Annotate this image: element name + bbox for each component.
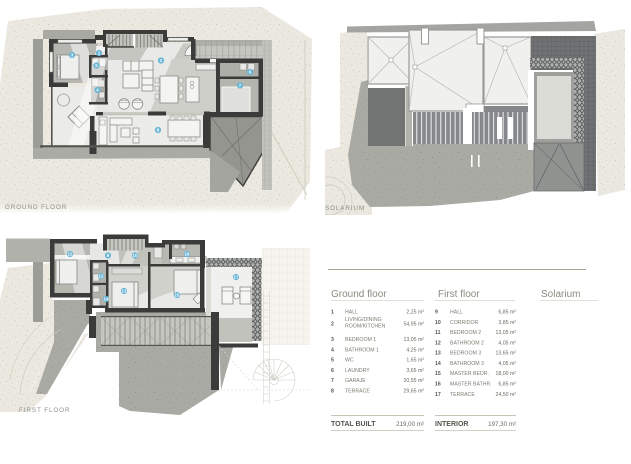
svg-text:17: 17 [234, 275, 239, 280]
svg-text:5: 5 [331, 358, 334, 364]
svg-text:MASTER BEDR.: MASTER BEDR. [450, 371, 489, 377]
svg-text:2,25 m²: 2,25 m² [406, 310, 424, 316]
svg-text:GROUND FLOOR: GROUND FLOOR [5, 204, 67, 211]
svg-text:4,25 m²: 4,25 m² [406, 347, 424, 353]
svg-text:BEDROOM 2: BEDROOM 2 [450, 330, 481, 336]
svg-text:54,95 m²: 54,95 m² [404, 322, 425, 328]
svg-text:INTERIOR: INTERIOR [435, 421, 468, 428]
svg-text:3,65 m²: 3,65 m² [406, 368, 424, 374]
svg-text:TOTAL BUILT: TOTAL BUILT [331, 421, 376, 428]
svg-text:FIRST FLOOR: FIRST FLOOR [19, 407, 70, 414]
svg-text:12: 12 [99, 274, 104, 279]
svg-text:13: 13 [435, 351, 441, 357]
svg-text:11: 11 [68, 252, 73, 257]
svg-text:BATHROOM 2: BATHROOM 2 [450, 340, 484, 346]
svg-text:3,85 m²: 3,85 m² [498, 320, 516, 326]
svg-text:4,05 m²: 4,05 m² [498, 340, 516, 346]
svg-text:BEDROOM 1: BEDROOM 1 [345, 337, 376, 343]
svg-text:GARAJE: GARAJE [345, 378, 366, 384]
svg-text:24,50 m²: 24,50 m² [496, 392, 517, 398]
svg-text:MASTER BATHR.: MASTER BATHR. [450, 382, 492, 388]
svg-text:14: 14 [435, 361, 441, 367]
svg-text:13,65 m²: 13,65 m² [496, 351, 517, 357]
svg-text:CORRIDOR: CORRIDOR [450, 320, 478, 326]
svg-text:First floor: First floor [438, 289, 480, 300]
svg-text:2: 2 [331, 322, 334, 328]
svg-text:4,05 m²: 4,05 m² [498, 361, 516, 367]
svg-text:4: 4 [331, 347, 334, 353]
svg-text:1: 1 [331, 310, 334, 316]
svg-text:HALL: HALL [450, 310, 463, 316]
svg-text:LIVING/DINING: LIVING/DINING [345, 317, 382, 323]
svg-text:10: 10 [133, 253, 138, 258]
svg-text:16: 16 [435, 382, 441, 388]
svg-text:219,00 m²: 219,00 m² [396, 421, 424, 428]
svg-text:15: 15 [435, 371, 441, 377]
svg-text:20,55 m²: 20,55 m² [404, 378, 425, 384]
svg-text:17: 17 [435, 392, 441, 398]
svg-text:7: 7 [331, 378, 334, 384]
svg-text:13,05 m²: 13,05 m² [496, 330, 517, 336]
svg-text:Solarium: Solarium [541, 289, 580, 300]
svg-text:Ground floor: Ground floor [331, 289, 387, 300]
svg-text:13: 13 [122, 289, 127, 294]
svg-text:3: 3 [331, 337, 334, 343]
svg-text:12: 12 [435, 340, 441, 346]
svg-text:6,85 m²: 6,85 m² [498, 310, 516, 316]
svg-text:TERRACE: TERRACE [345, 389, 370, 395]
svg-text:HALL: HALL [345, 310, 358, 316]
svg-text:WC: WC [345, 358, 354, 364]
svg-text:LAUNDRY: LAUNDRY [345, 368, 370, 374]
svg-text:6,85 m²: 6,85 m² [498, 382, 516, 388]
svg-text:18,00 m²: 18,00 m² [496, 371, 517, 377]
svg-text:10: 10 [435, 320, 441, 326]
svg-text:14: 14 [104, 297, 109, 302]
svg-text:ROOM/KITCHEN: ROOM/KITCHEN [345, 324, 386, 330]
svg-text:15: 15 [175, 293, 180, 298]
svg-text:197,30 m²: 197,30 m² [488, 421, 516, 428]
svg-text:16: 16 [185, 252, 190, 257]
svg-text:13,05 m²: 13,05 m² [404, 337, 425, 343]
svg-text:BATHROOM 3: BATHROOM 3 [450, 361, 484, 367]
svg-text:BEDROOM 3: BEDROOM 3 [450, 351, 481, 357]
svg-text:1,65 m²: 1,65 m² [406, 358, 424, 364]
svg-text:SOLARIUM: SOLARIUM [325, 205, 365, 212]
svg-text:29,65 m²: 29,65 m² [404, 389, 425, 395]
svg-text:TERRACE: TERRACE [450, 392, 475, 398]
svg-text:11: 11 [435, 330, 441, 336]
svg-text:8: 8 [331, 389, 334, 395]
svg-text:BATHROOM 1: BATHROOM 1 [345, 347, 379, 353]
svg-text:9: 9 [435, 310, 438, 316]
svg-text:6: 6 [331, 368, 334, 374]
